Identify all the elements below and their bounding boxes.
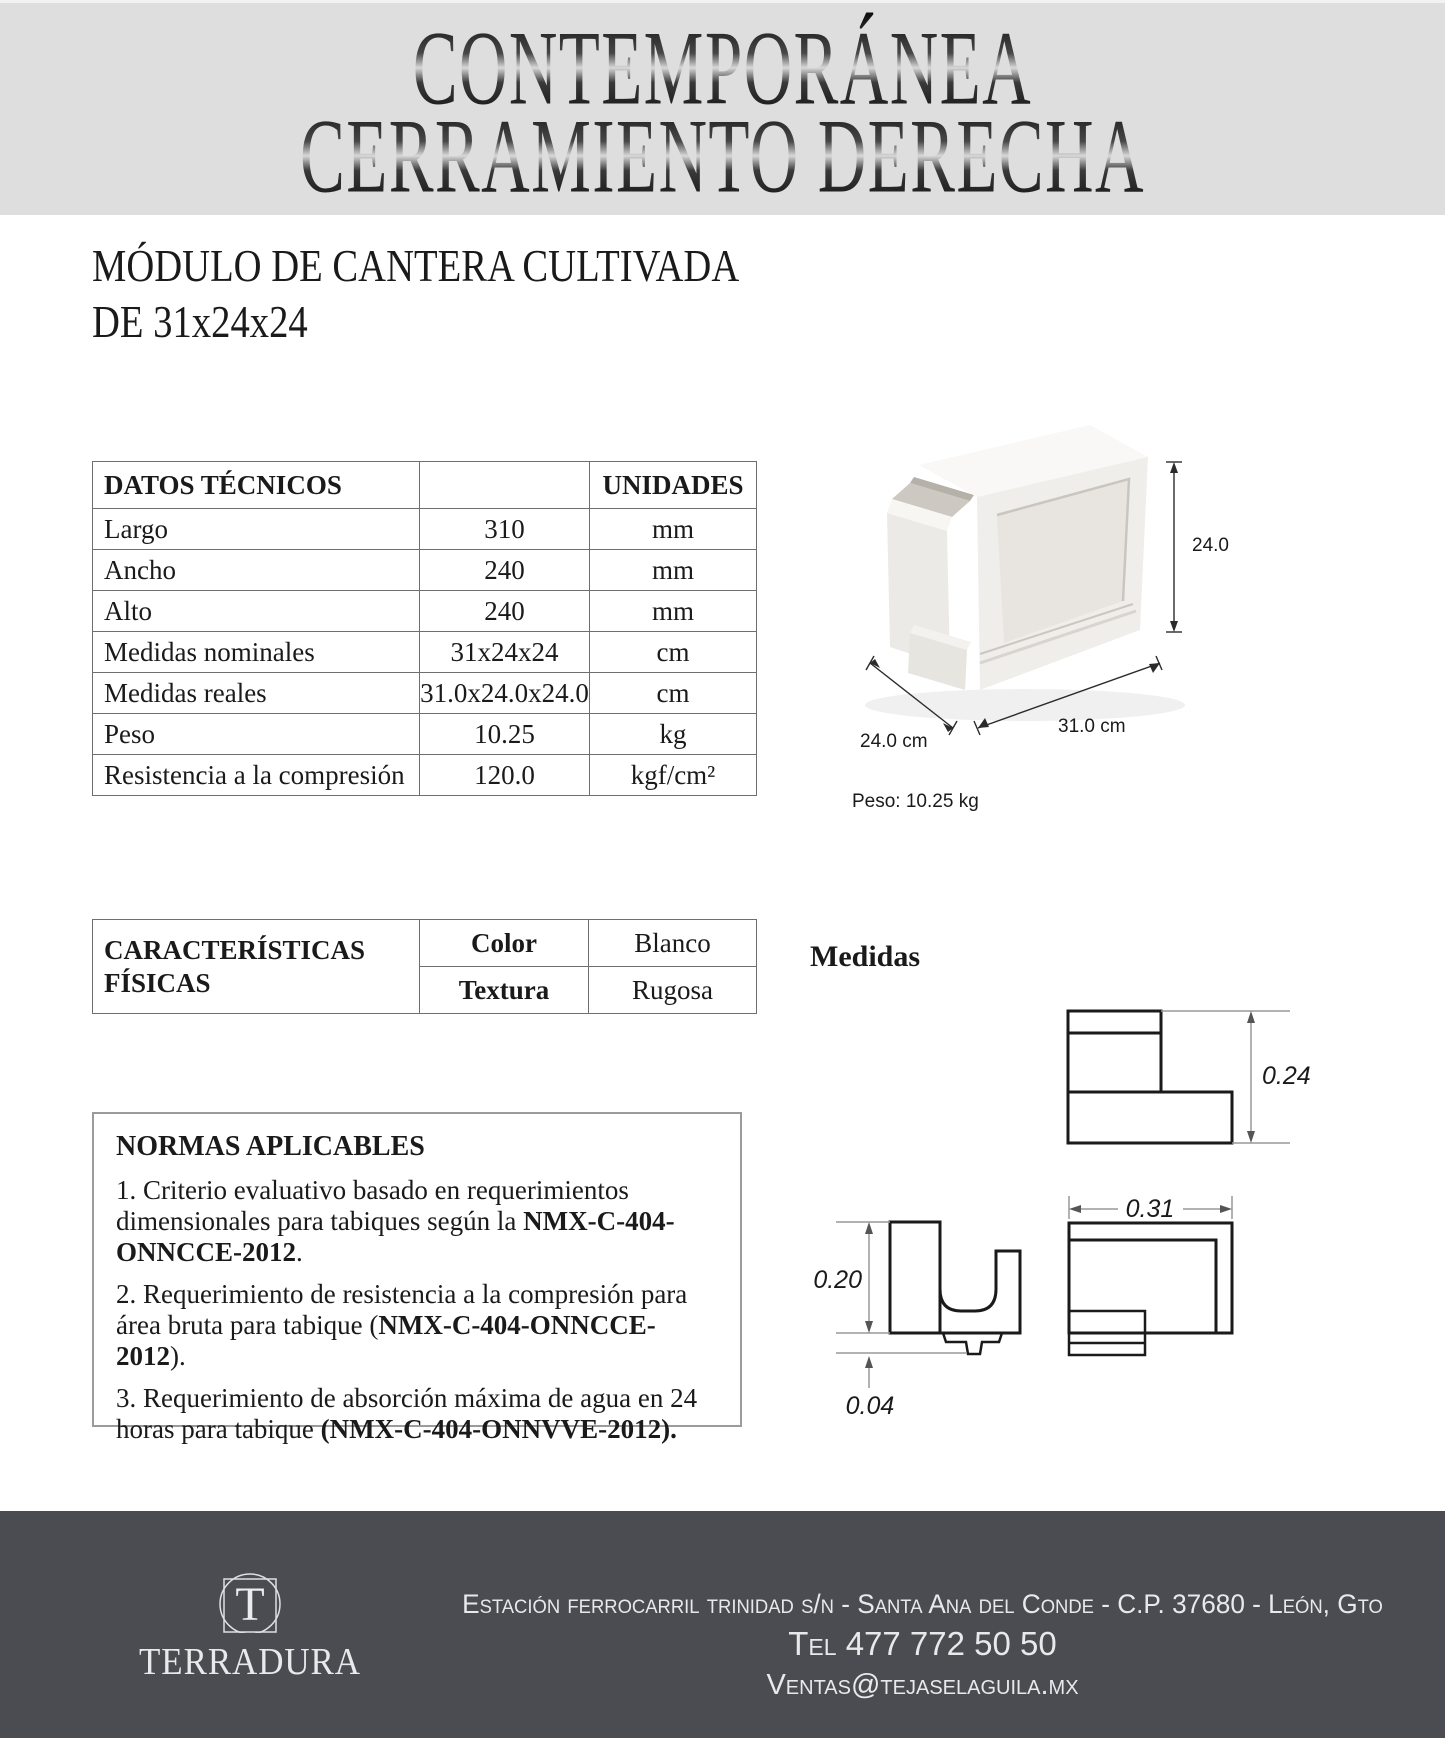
row-unit: mm [590,550,757,591]
row-value: 120.0 [420,755,590,796]
block-shadow [865,689,1185,721]
row-label: Medidas nominales [93,632,420,673]
arrowhead [1149,663,1160,673]
table-row: Largo 310 mm [93,509,757,550]
arrowhead [1247,1011,1255,1023]
subtitle-line2: DE 31x24x24 [92,294,739,350]
table-row: Peso 10.25 kg [93,714,757,755]
elevation-drawing [1068,1011,1232,1143]
product-photo: 24.0 cm 31.0 cm 24.0 cm Peso: 10.25 kg [800,405,1230,825]
arrowhead [1170,621,1178,632]
phys-title-cell: CARACTERÍSTICAS FÍSICAS [93,920,420,1014]
dim-024-label: 0.24 [1262,1062,1311,1090]
norma-item: 2. Requerimiento de resistencia a la com… [116,1279,718,1372]
terradura-logo: T TERRADURA [120,1555,380,1684]
table-row: Medidas reales 31.0x24.0x24.0 cm [93,673,757,714]
dim-031-label: 0.31 [1126,1195,1175,1223]
logo-letter: T [235,1578,264,1631]
title-banner: CONTEMPORÁNEA CERRAMIENTO DERECHA [0,0,1445,215]
row-unit: cm [590,673,757,714]
row-label: Peso [93,714,420,755]
row-value: 240 [420,550,590,591]
row-label: Alto [93,591,420,632]
logo-emblem: T [120,1555,380,1633]
row-value: 310 [420,509,590,550]
dim-004-label: 0.04 [846,1392,895,1420]
row-value: 240 [420,591,590,632]
header-datos-tecnicos: DATOS TÉCNICOS [93,462,420,509]
row-label: Ancho [93,550,420,591]
arrowhead [1170,462,1178,473]
arrowhead [1220,1205,1232,1213]
norma-item: 1. Criterio evaluativo basado en requeri… [116,1175,718,1268]
plan-drawing [1069,1223,1232,1355]
row-unit: kg [590,714,757,755]
height-dim-label: 24.0 cm [1192,535,1230,556]
normas-heading: NORMAS APLICABLES [116,1130,718,1164]
footer: T TERRADURA Estación ferrocarril trinida… [0,1511,1445,1738]
brand-name: TERRADURA [130,1640,369,1684]
medidas-heading: Medidas [810,940,920,974]
contact-block: Estación ferrocarril trinidad s/n - Sant… [400,1585,1445,1705]
u-profile-drawing [890,1222,1020,1354]
email-line: Ventas@tejaselaguila.mx [400,1665,1445,1705]
normas-box: NORMAS APLICABLES 1. Criterio evaluativo… [92,1112,742,1427]
row-unit: mm [590,509,757,550]
phys-label: Textura [420,967,589,1014]
table-row: Resistencia a la compresión 120.0 kgf/cm… [93,755,757,796]
row-unit: cm [590,632,757,673]
arrowhead [865,1222,873,1234]
row-unit: kgf/cm² [590,755,757,796]
arrowhead [865,1356,873,1368]
table-row: CARACTERÍSTICAS FÍSICAS Color Blanco [93,920,757,967]
arrowhead [1247,1131,1255,1143]
physical-characteristics-table: CARACTERÍSTICAS FÍSICAS Color Blanco Tex… [92,919,757,1014]
header-unidades: UNIDADES [590,462,757,509]
subtitle-line1: MÓDULO DE CANTERA CULTIVADA [92,238,739,294]
row-label: Medidas reales [93,673,420,714]
table-row: Medidas nominales 31x24x24 cm [93,632,757,673]
row-unit: mm [590,591,757,632]
table-header-row: DATOS TÉCNICOS UNIDADES [93,462,757,509]
row-value: 10.25 [420,714,590,755]
product-subtitle: MÓDULO DE CANTERA CULTIVADA DE 31x24x24 [92,238,739,350]
technical-data-table: DATOS TÉCNICOS UNIDADES Largo 310 mm Anc… [92,461,757,796]
phone-line: Tel 477 772 50 50 [400,1623,1445,1665]
norma-item: 3. Requerimiento de absorción máxima de … [116,1383,718,1445]
dimension-arrow-height [1166,462,1182,632]
arrowhead [865,1321,873,1333]
row-label: Resistencia a la compresión [93,755,420,796]
dim-lines-020 [836,1222,967,1388]
address-line: Estación ferrocarril trinidad s/n - Sant… [416,1585,1430,1623]
weight-caption: Peso: 10.25 kg [852,791,979,812]
phys-label: Color [420,920,589,967]
table-row: Ancho 240 mm [93,550,757,591]
header-values [420,462,590,509]
arrowhead [1069,1205,1081,1213]
phys-value: Rugosa [589,967,757,1014]
page-title-line2: CERRAMIENTO DERECHA [0,97,1445,208]
technical-drawings: 0.24 0.20 0.04 [790,990,1320,1440]
datasheet-page: CONTEMPORÁNEA CERRAMIENTO DERECHA MÓDULO… [0,0,1445,1741]
table-row: Alto 240 mm [93,591,757,632]
row-label: Largo [93,509,420,550]
depth-dim-label: 24.0 cm [860,731,928,752]
dim-020-label: 0.20 [813,1266,862,1294]
row-value: 31x24x24 [420,632,590,673]
row-value: 31.0x24.0x24.0 [420,673,590,714]
length-dim-label: 31.0 cm [1058,716,1126,737]
phys-value: Blanco [589,920,757,967]
